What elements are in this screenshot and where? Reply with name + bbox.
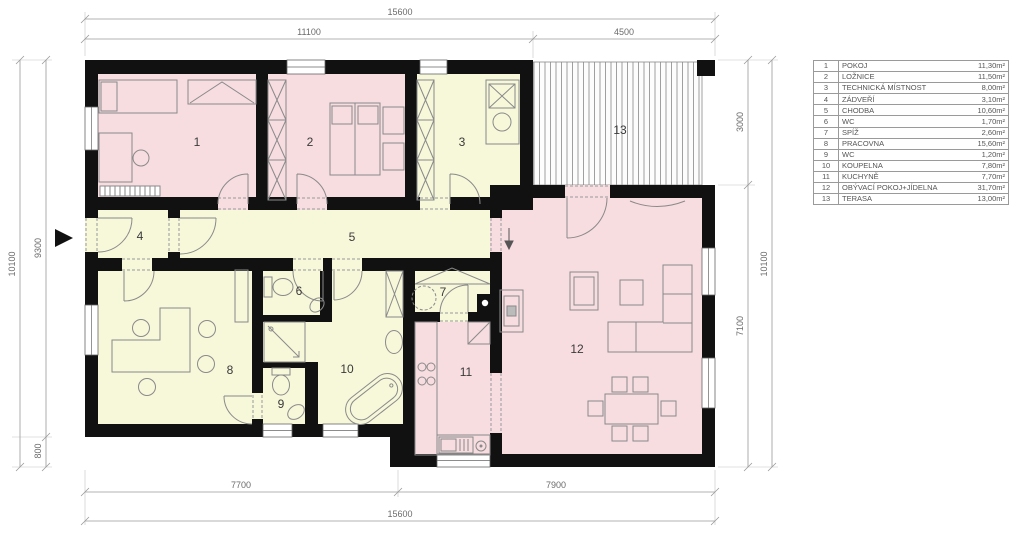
room-label-11: 11 bbox=[460, 365, 473, 379]
dim-left-main: 9300 bbox=[33, 238, 43, 258]
room-label-6: 6 bbox=[296, 284, 303, 298]
dim-right-total: 10100 bbox=[759, 251, 769, 276]
room-label-4: 4 bbox=[137, 229, 144, 243]
room-label-12: 12 bbox=[570, 342, 584, 356]
dim-top-total: 15600 bbox=[387, 7, 412, 17]
room-label-2: 2 bbox=[307, 135, 314, 149]
dim-left-total: 10100 bbox=[7, 251, 17, 276]
legend-row: 13TERASA13,00m² bbox=[814, 194, 1009, 205]
floorplan-page: 1 2 3 4 5 6 7 8 9 10 11 12 13 15600 111 bbox=[0, 0, 1024, 536]
entrance-arrow bbox=[55, 229, 73, 247]
legend-row: 8PRACOVNA15,60m² bbox=[814, 138, 1009, 149]
dim-top-main: 11100 bbox=[297, 27, 321, 37]
legend-row: 9WC1,20m² bbox=[814, 149, 1009, 160]
legend-row: 10KOUPELNA7,80m² bbox=[814, 160, 1009, 171]
dim-bottom-left: 7700 bbox=[231, 480, 251, 490]
room-label-1: 1 bbox=[194, 135, 201, 149]
room-label-13: 13 bbox=[613, 123, 627, 137]
dim-left-offset: 800 bbox=[33, 443, 43, 458]
room-label-8: 8 bbox=[227, 363, 234, 377]
room-label-10: 10 bbox=[340, 362, 354, 376]
room-label-9: 9 bbox=[278, 397, 285, 411]
room-legend-table: 1POKOJ11,30m² 2LOŽNICE11,50m² 3TECHNICKÁ… bbox=[813, 60, 1009, 205]
dim-bottom-total: 15600 bbox=[387, 509, 412, 519]
legend-row: 6WC1,70m² bbox=[814, 116, 1009, 127]
legend-row: 2LOŽNICE11,50m² bbox=[814, 72, 1009, 83]
legend-row: 5CHODBA10,60m² bbox=[814, 105, 1009, 116]
dim-right-living: 7100 bbox=[735, 316, 745, 336]
legend-row: 7SPÍŽ2,60m² bbox=[814, 127, 1009, 138]
dim-top-terrace: 4500 bbox=[614, 27, 634, 37]
legend-row: 1POKOJ11,30m² bbox=[814, 61, 1009, 72]
room-label-5: 5 bbox=[349, 230, 356, 244]
legend-row: 12OBÝVACÍ POKOJ+JÍDELNA31,70m² bbox=[814, 183, 1009, 194]
dim-right-terrace: 3000 bbox=[735, 112, 745, 132]
floorplan-drawing: 1 2 3 4 5 6 7 8 9 10 11 12 13 15600 111 bbox=[0, 0, 810, 536]
legend-row: 3TECHNICKÁ MÍSTNOST8,00m² bbox=[814, 83, 1009, 94]
room-label-7: 7 bbox=[440, 285, 447, 299]
legend-row: 4ZÁDVEŘÍ3,10m² bbox=[814, 94, 1009, 105]
legend-row: 11KUCHYNĚ7,70m² bbox=[814, 171, 1009, 182]
room-label-3: 3 bbox=[459, 135, 466, 149]
chimney-flue bbox=[482, 300, 488, 306]
dim-bottom-right: 7900 bbox=[546, 480, 566, 490]
